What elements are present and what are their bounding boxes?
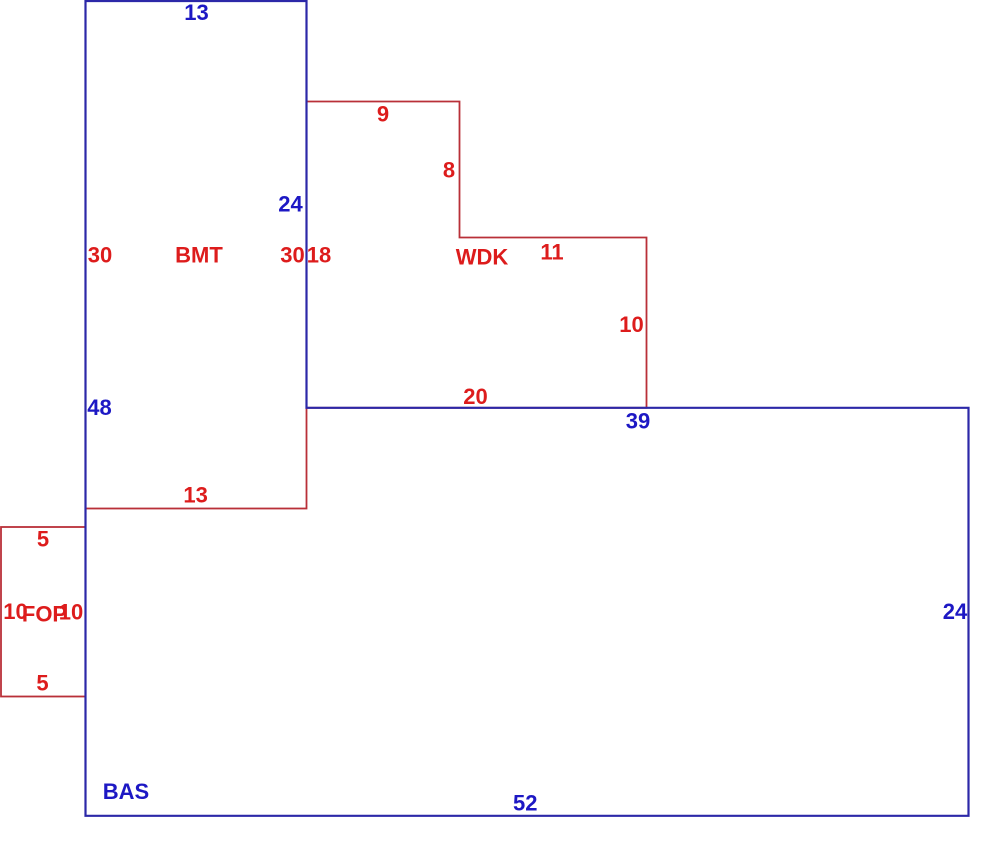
svg-text:11: 11 (540, 240, 563, 265)
svg-text:30: 30 (88, 243, 112, 268)
svg-text:10: 10 (619, 312, 643, 337)
svg-text:18: 18 (307, 243, 331, 268)
svg-text:8: 8 (443, 158, 455, 183)
svg-text:5: 5 (37, 527, 49, 552)
svg-text:9: 9 (377, 102, 389, 127)
svg-text:10: 10 (59, 600, 83, 625)
svg-text:BMT: BMT (175, 243, 223, 268)
svg-text:5: 5 (36, 671, 48, 696)
svg-text:48: 48 (87, 395, 111, 420)
svg-text:BAS: BAS (103, 779, 149, 804)
svg-text:WDK: WDK (456, 245, 509, 270)
svg-text:24: 24 (943, 599, 968, 624)
svg-text:39: 39 (626, 409, 650, 434)
svg-text:20: 20 (463, 384, 487, 409)
svg-text:13: 13 (184, 0, 208, 25)
svg-text:13: 13 (183, 483, 207, 508)
svg-text:30: 30 (280, 243, 304, 268)
svg-text:52: 52 (513, 791, 537, 816)
svg-text:24: 24 (278, 192, 303, 217)
